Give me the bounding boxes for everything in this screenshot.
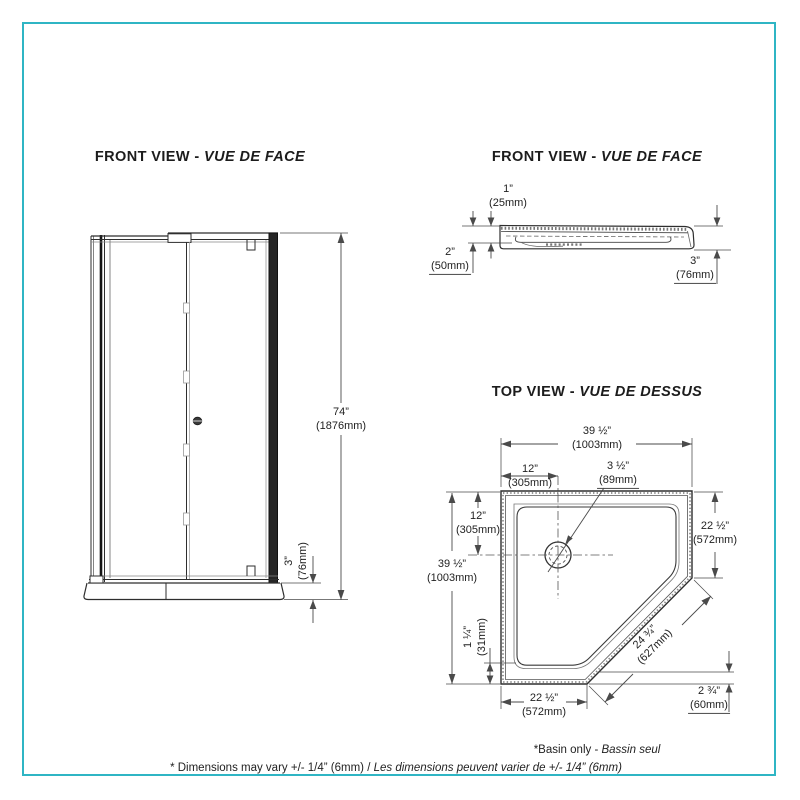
shower-door-drawing: [84, 233, 284, 600]
dim-top-depth: 39 ½”(1003mm): [427, 557, 477, 585]
dim-top-drain-x: 12”(305mm): [508, 462, 552, 490]
top-view-title-en: TOP VIEW: [492, 384, 566, 400]
dim-top-rim: 1 ¼”(31mm): [461, 618, 489, 656]
dim-top-width: 39 ½”(1003mm): [572, 424, 622, 452]
basin-only-note: *Basin only - Bassin seul: [534, 744, 661, 756]
door-front-view-title-en: FRONT VIEW: [95, 149, 190, 165]
dim-basin-flange: 1”(25mm): [489, 182, 527, 210]
dim-top-drain-diameter: 3 ½”(89mm): [597, 459, 639, 489]
top-view-title-fr: VUE DE DESSUS: [579, 384, 702, 400]
dim-basin-right-height: 3”(76mm): [674, 254, 716, 284]
door-knob: [193, 417, 202, 425]
drawing-canvas: [0, 0, 800, 800]
dim-door-height: 74”(1876mm): [316, 405, 366, 433]
spec-sheet-page: { "colors": { "frame_border": "#2fb5c4",…: [0, 0, 800, 800]
dim-top-drain-y: 12”(305mm): [456, 509, 500, 537]
dim-door-base-height: 3”(76mm): [282, 542, 310, 580]
dim-top-right-side: 22 ½”(572mm): [693, 519, 737, 547]
basin-front-view-title: FRONT VIEW - VUE DE FACE: [492, 149, 702, 165]
tolerance-footer: * Dimensions may vary +/- 1/4” (6mm) / L…: [170, 762, 622, 774]
door-front-view-title-fr: VUE DE FACE: [204, 149, 305, 165]
dim-top-corner: 2 ¾”(60mm): [688, 684, 730, 714]
basin-only-note-fr: Bassin seul: [601, 744, 660, 756]
door-front-view-title: FRONT VIEW - VUE DE FACE: [95, 149, 305, 165]
basin-front-view-title-en: FRONT VIEW: [492, 149, 587, 165]
basin-front-view-title-fr: VUE DE FACE: [601, 149, 702, 165]
tolerance-footer-fr: Les dimensions peuvent varier de +/- 1/4…: [374, 762, 622, 774]
top-view-title: TOP VIEW - VUE DE DESSUS: [492, 384, 703, 400]
dim-top-bottom-edge: 22 ½”(572mm): [522, 691, 566, 719]
dim-basin-left-height: 2”(50mm): [429, 245, 471, 275]
basin-front-drawing: [500, 226, 694, 249]
